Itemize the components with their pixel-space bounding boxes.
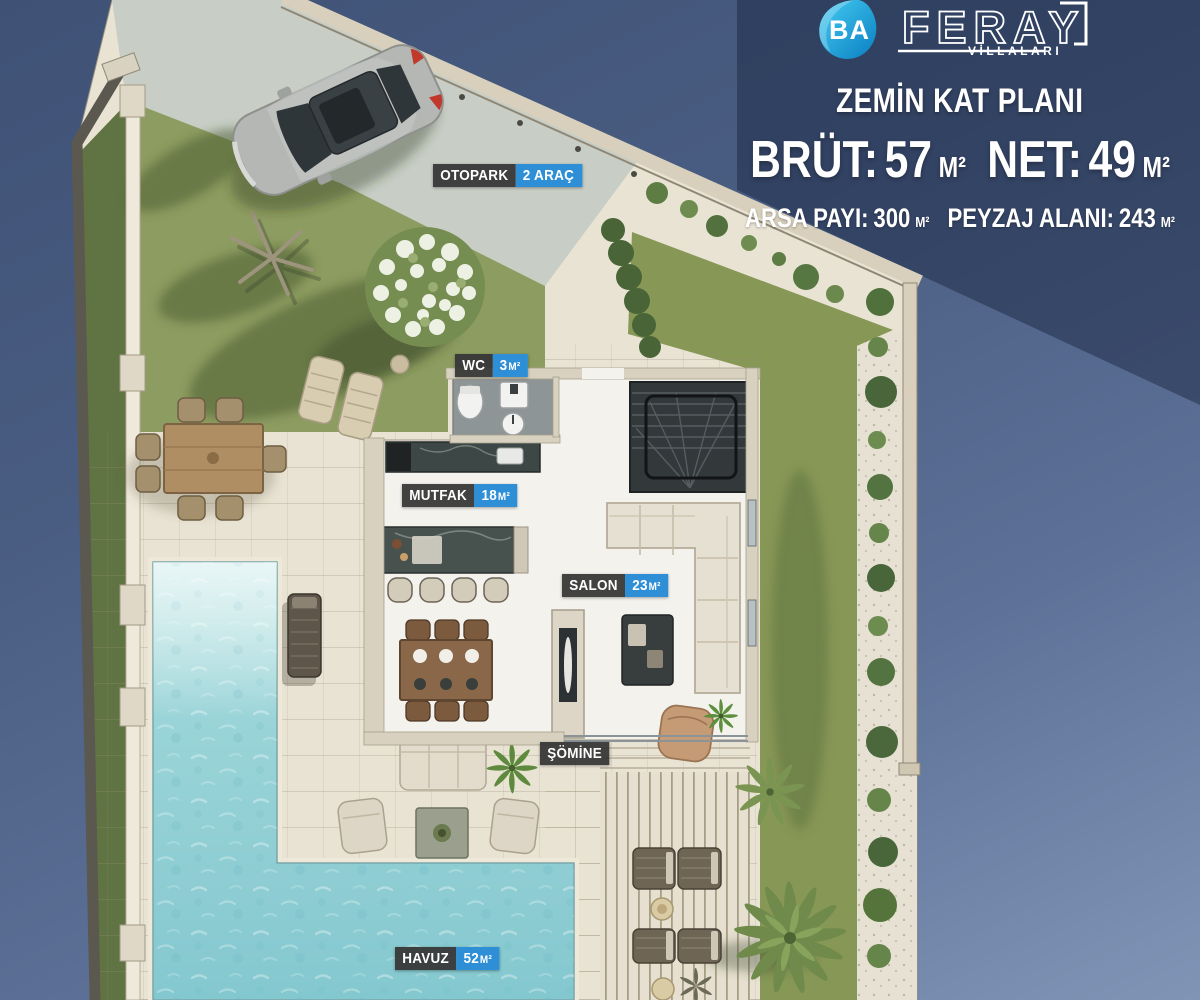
terrace-palm-plant <box>487 743 538 794</box>
indoor-dining <box>400 620 492 721</box>
logo-ba: BA <box>829 15 870 45</box>
stat-peyzaj-alani: PEYZAJ ALANI:243M² <box>948 203 1175 234</box>
label-wc: WC 3M² <box>455 354 528 377</box>
label-havuz: HAVUZ 52M² <box>395 947 499 970</box>
label-salon-name: SALON <box>562 574 625 597</box>
inner-fence <box>126 85 140 1000</box>
label-mutfak: MUTFAK 18M² <box>402 484 517 507</box>
staircase <box>630 382 748 492</box>
area-stats-secondary: ARSA PAYI:300M² PEYZAJ ALANI:243M² <box>725 203 1195 234</box>
stat-net: NET:49M² <box>987 130 1170 190</box>
kitchen-sink <box>497 448 523 464</box>
label-salon: SALON 23M² <box>562 574 668 597</box>
label-somine-name: ŞÖMİNE <box>540 742 609 765</box>
label-otopark: OTOPARK 2 ARAÇ <box>433 164 582 187</box>
label-wc-name: WC <box>455 354 492 377</box>
poolside-lounger <box>282 594 321 686</box>
floorplan-poster: { "header": { "logo": { "ba": "BA", "nam… <box>0 0 1200 1000</box>
brand-logo: BA FERAY VİLLALARI <box>812 0 1112 68</box>
wc-room <box>453 377 557 437</box>
armchair <box>656 704 715 764</box>
label-havuz-name: HAVUZ <box>395 947 456 970</box>
right-wall <box>903 283 917 775</box>
salon-plant <box>704 699 738 733</box>
area-stats-primary: BRÜT:57M² NET:49M² <box>730 130 1190 190</box>
logo-subtitle: VİLLALARI <box>968 43 1062 58</box>
kitchen-island <box>383 527 514 573</box>
label-mutfak-name: MUTFAK <box>402 484 474 507</box>
label-somine: ŞÖMİNE <box>540 742 609 765</box>
stat-brut: BRÜT:57M² <box>750 130 966 190</box>
deck-side-table <box>652 978 674 1000</box>
page-title: ZEMİN KAT PLANI <box>745 82 1175 121</box>
label-otopark-name: OTOPARK <box>433 164 516 187</box>
stat-arsa-payi: ARSA PAYI:300M² <box>745 203 929 234</box>
fireplace <box>552 610 584 738</box>
